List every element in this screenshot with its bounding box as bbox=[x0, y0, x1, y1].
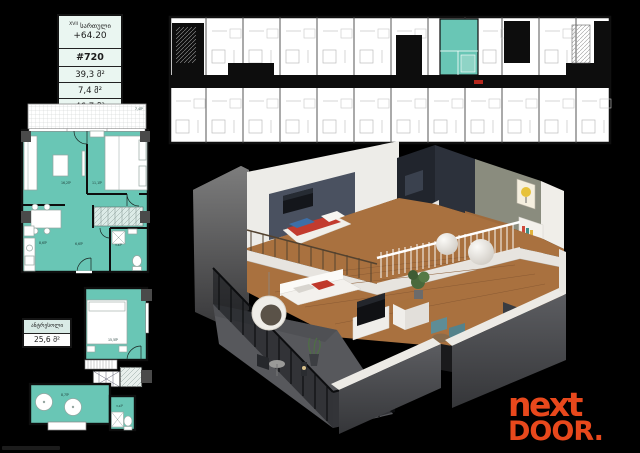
balcony-area-label: 7,4მ² bbox=[135, 107, 144, 111]
floor-row: XVII სართული +64.20 bbox=[59, 16, 121, 48]
mezzanine-area: 25,6 მ² bbox=[24, 334, 70, 347]
mezz-lounge-label: 8,7მ² bbox=[61, 393, 70, 397]
mezzanine-floor-plan: 15,5მ² 8,7მ² bbox=[15, 283, 155, 449]
mezz-column-1 bbox=[141, 289, 152, 301]
mezzanine-title: ანტრესოლი bbox=[24, 320, 70, 334]
sphere-lamp-1 bbox=[436, 233, 458, 255]
elevation-value: +64.20 bbox=[73, 31, 106, 41]
main-floor-plan: 7,4მ² bbox=[15, 98, 165, 290]
entry-opening bbox=[76, 271, 92, 273]
radiator bbox=[85, 360, 117, 369]
floor-word: სართული bbox=[80, 22, 111, 30]
stairs bbox=[94, 207, 143, 226]
watermark bbox=[2, 446, 60, 450]
hall-label: 6,6მ² bbox=[75, 242, 84, 246]
area-interior: 39,3 მ² bbox=[59, 66, 121, 82]
mezz-bedroom-label: 15,5მ² bbox=[108, 338, 119, 342]
lantern bbox=[301, 362, 307, 376]
bath-label: 3,4მ² bbox=[115, 243, 122, 247]
area-balcony: 7,4 მ² bbox=[59, 82, 121, 98]
balcony: 7,4მ² bbox=[28, 104, 146, 130]
plan-sheet: XVII სართული +64.20 #720 39,3 მ² 7,4 მ² … bbox=[0, 0, 640, 453]
floor-number: XVII bbox=[69, 22, 78, 27]
bedroom-label: 11,1მ² bbox=[92, 181, 103, 185]
unit-marker bbox=[474, 80, 483, 84]
stairwell-hatch-left bbox=[176, 27, 196, 63]
nextdoor-logo: next DOOR. bbox=[508, 390, 603, 445]
unit-number: #720 bbox=[59, 48, 121, 67]
kitchen-label: 8,6მ² bbox=[39, 241, 48, 245]
mezz-lounge: 8,7მ² bbox=[30, 384, 110, 430]
logo-line2: DOOR. bbox=[508, 420, 603, 445]
mezz-bathroom: 3,2მ² bbox=[110, 396, 135, 430]
mezz-bath-label: 3,2მ² bbox=[116, 404, 123, 408]
sphere-lamp-2 bbox=[468, 239, 494, 265]
corridor bbox=[170, 75, 610, 88]
mezz-bedroom: 15,5მ² bbox=[85, 288, 149, 360]
floor-label: XVII სართული bbox=[69, 22, 111, 30]
right-wall bbox=[541, 181, 564, 249]
building-floor-strip bbox=[168, 11, 612, 149]
window-band bbox=[29, 129, 145, 132]
highlighted-unit bbox=[440, 19, 478, 75]
mezz-column-2 bbox=[141, 370, 152, 383]
mezzanine-info-box: ანტრესოლი 25,6 მ² bbox=[22, 318, 72, 348]
stairwell-hatch bbox=[572, 25, 590, 63]
living-label: 16,2მ² bbox=[61, 181, 72, 185]
